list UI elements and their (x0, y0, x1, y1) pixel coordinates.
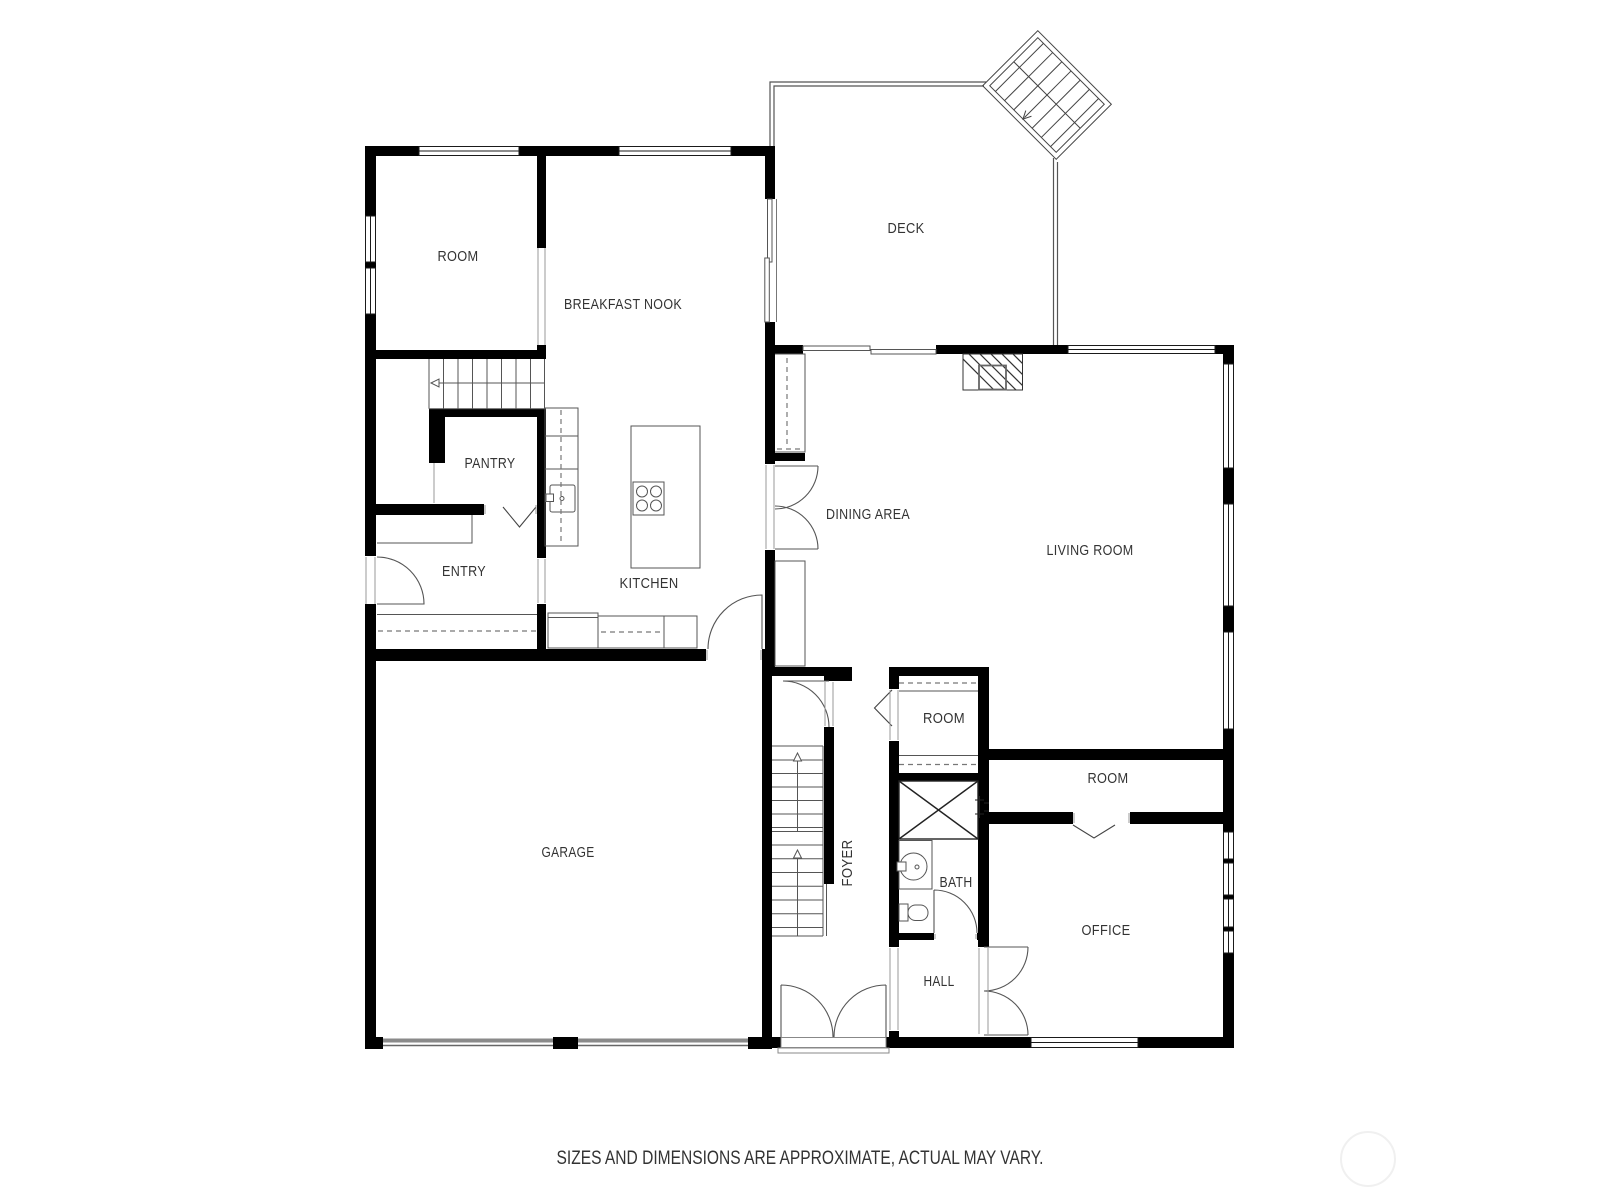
svg-text:KITCHEN: KITCHEN (620, 575, 679, 592)
svg-text:PANTRY: PANTRY (465, 455, 516, 472)
svg-text:OFFICE: OFFICE (1082, 922, 1131, 939)
svg-text:HALL: HALL (924, 973, 955, 990)
svg-text:SIZES AND DIMENSIONS ARE APPRO: SIZES AND DIMENSIONS ARE APPROXIMATE, AC… (557, 1148, 1044, 1169)
svg-text:BREAKFAST NOOK: BREAKFAST NOOK (564, 296, 682, 313)
svg-text:DINING AREA: DINING AREA (826, 506, 910, 523)
svg-text:ENTRY: ENTRY (442, 563, 486, 580)
svg-text:DECK: DECK (888, 220, 925, 237)
svg-text:LIVING ROOM: LIVING ROOM (1047, 542, 1134, 559)
svg-text:BATH: BATH (940, 874, 973, 891)
svg-text:GARAGE: GARAGE (542, 844, 595, 861)
svg-text:ROOM: ROOM (1088, 770, 1129, 787)
svg-text:FOYER: FOYER (839, 840, 856, 887)
svg-text:ROOM: ROOM (923, 710, 965, 727)
svg-text:ROOM: ROOM (438, 248, 479, 265)
